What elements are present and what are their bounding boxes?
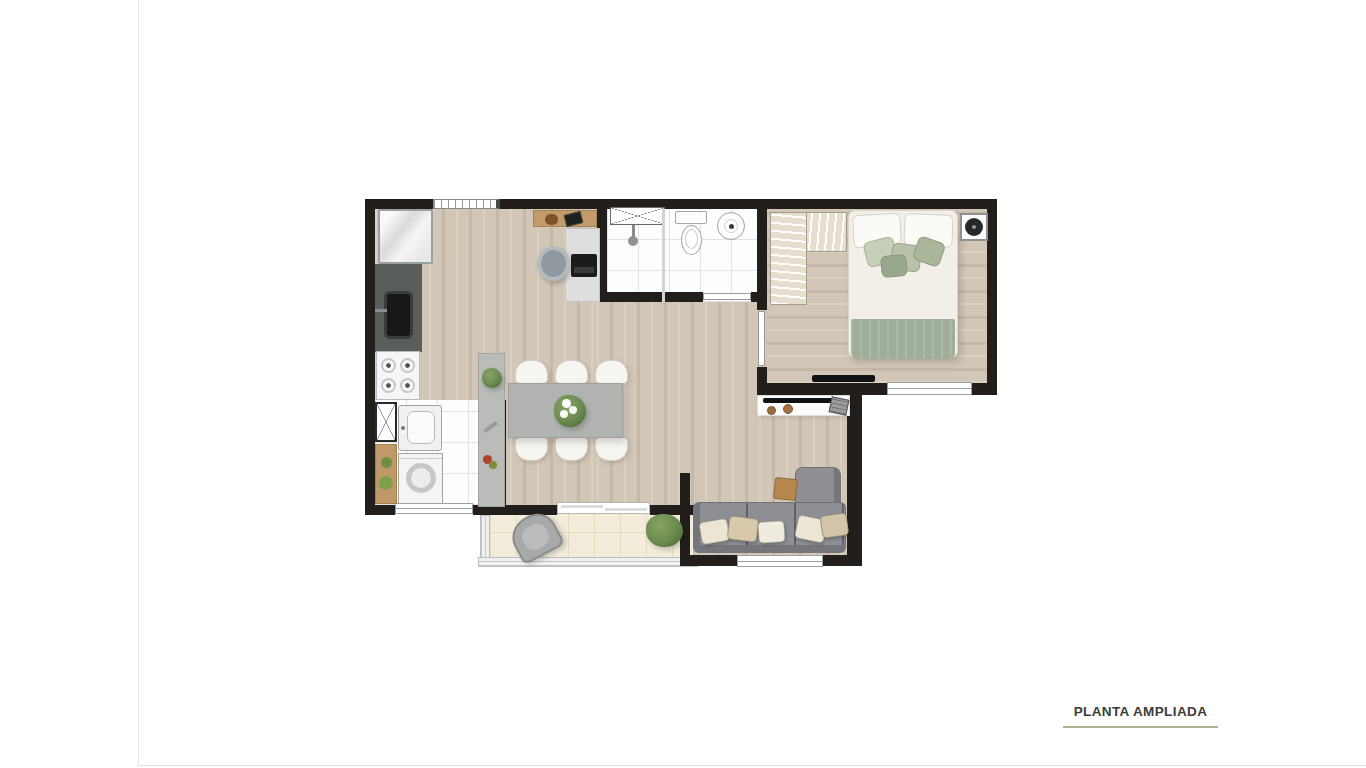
kitchen-sink [384, 291, 413, 339]
left-divider-line [138, 0, 139, 766]
floor-plan [365, 199, 997, 570]
wall-bedroom-bottom-left [757, 383, 887, 395]
dining-chair [555, 360, 588, 384]
office-chair [537, 246, 570, 281]
bathroom-door-leaf [703, 293, 751, 300]
wall-left [365, 199, 375, 515]
laundry-window [395, 503, 473, 514]
wall-bathroom-bottom [597, 292, 703, 302]
wall-bedroom-left-upper [757, 199, 767, 310]
tank-basin [407, 411, 435, 444]
balcony-sliding-door [557, 502, 650, 514]
sofa-cushion [727, 515, 760, 542]
burner-icon [400, 378, 415, 393]
drain-icon [729, 224, 734, 229]
washer-drum-icon [406, 463, 436, 493]
living-tv [763, 398, 833, 403]
speaker-panel [960, 213, 988, 241]
bottom-divider-line [138, 765, 1366, 766]
dining-chair [595, 437, 628, 461]
living-window [737, 555, 823, 567]
flower-icon [569, 406, 577, 414]
double-bed [848, 210, 958, 358]
laundry-tank [398, 405, 442, 451]
green-jar-icon [379, 476, 393, 490]
laptop-icon [571, 254, 597, 277]
wall-living-bottom-left [680, 555, 737, 566]
basket-icon [545, 214, 558, 225]
wall-living-right [847, 390, 862, 566]
washbasin [717, 212, 745, 240]
fridge [378, 209, 433, 264]
shower-partition [662, 209, 665, 302]
caption-underline [1063, 726, 1218, 728]
toilet-tank [675, 211, 707, 224]
bed-blanket [851, 319, 955, 359]
toilet-bowl-inner [685, 229, 698, 249]
bedroom-window [887, 382, 972, 395]
toilet-bowl [681, 225, 702, 255]
washing-machine [398, 453, 443, 504]
green-jar-icon [381, 457, 392, 468]
sofa-cushion [820, 512, 850, 539]
book-icon [564, 211, 583, 227]
sofa-cushion [757, 520, 785, 544]
wall-laundry-bottom-left [365, 505, 395, 515]
balcony-railing-bottom [478, 557, 698, 567]
laundry-shelf [375, 444, 397, 504]
dining-chair [515, 437, 548, 461]
flower-centerpiece [554, 395, 586, 427]
wall-living-bottom-right [823, 555, 862, 566]
peninsula-plant-icon [482, 368, 502, 388]
stove [376, 351, 420, 400]
faucet-icon [375, 309, 387, 312]
burner-icon [381, 358, 396, 373]
washer-panel-line [399, 458, 442, 459]
shower-niche [610, 207, 665, 225]
decor-bowl-icon [783, 404, 793, 414]
side-table [773, 477, 798, 501]
lounge-chair-seat [518, 520, 552, 553]
bedroom-tv [812, 375, 875, 382]
pillow-icon [880, 254, 908, 278]
flower-icon [560, 410, 568, 418]
decor-bowl-icon [767, 406, 776, 415]
bedroom-door-leaf [758, 311, 765, 366]
wall-top [500, 199, 997, 209]
tank-tap-icon [401, 426, 405, 430]
dining-chair [595, 360, 628, 384]
burner-icon [381, 378, 396, 393]
wall-bedroom-left-lower [757, 367, 767, 383]
media-console-icon [829, 396, 850, 415]
wall-top-left [365, 199, 433, 209]
service-shaft [375, 402, 397, 442]
entry-sideboard [533, 210, 597, 227]
laptop-keyboard [574, 267, 594, 273]
slider-panel-right [605, 508, 647, 511]
wall-living-left [680, 473, 690, 566]
speaker-dot [972, 225, 976, 229]
kitchen-window [433, 199, 500, 209]
fruit-icon [489, 461, 497, 469]
wardrobe-side [770, 212, 807, 305]
balcony-plant-icon [646, 514, 683, 547]
dining-chair [515, 360, 548, 384]
burner-icon [400, 358, 415, 373]
slider-panel-left [561, 505, 603, 508]
page-canvas: PLANTA AMPLIADA [0, 0, 1366, 768]
shower-head-icon [628, 236, 638, 246]
dining-chair [555, 437, 588, 461]
tv-rack [757, 395, 850, 416]
caption-planta-ampliada: PLANTA AMPLIADA [1063, 704, 1218, 719]
wall-bedroom-right [987, 199, 997, 395]
